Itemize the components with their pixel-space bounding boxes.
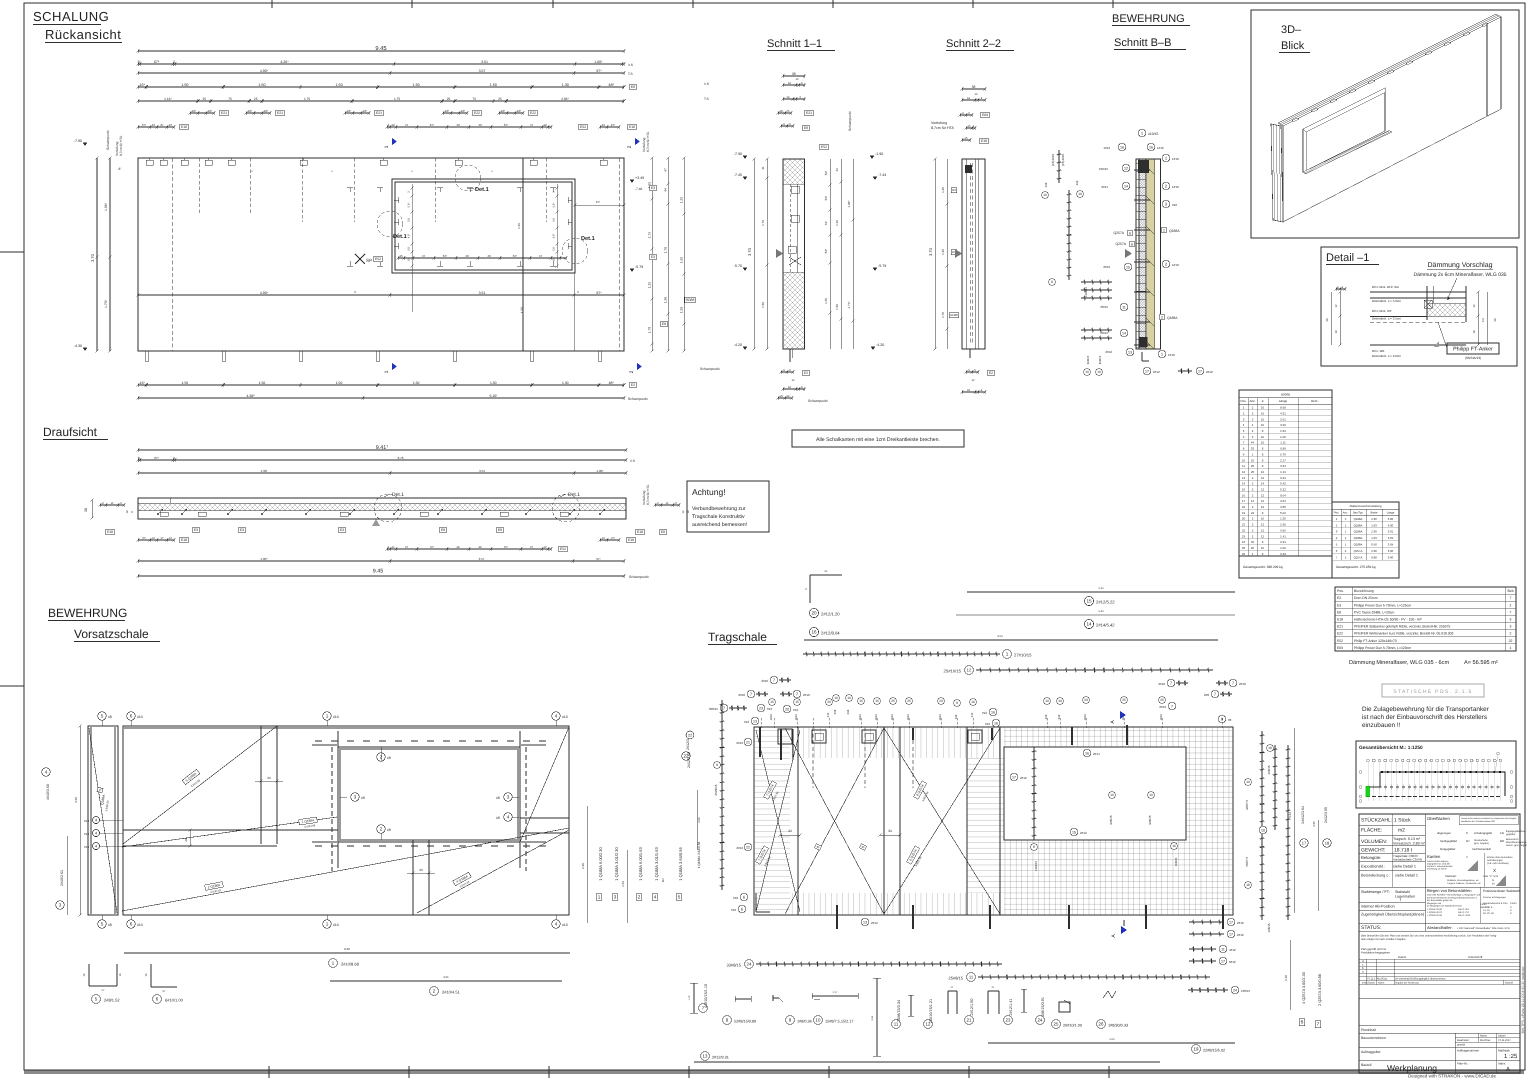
svg-text:-4.30: -4.30 xyxy=(74,344,82,348)
svg-text:67⁶: 67⁶ xyxy=(504,123,509,127)
svg-text:48⁸: 48⁸ xyxy=(609,381,615,385)
svg-text:#12: #12 xyxy=(985,722,990,726)
svg-text:8.68: 8.68 xyxy=(1280,406,1286,410)
svg-text:5: 5 xyxy=(101,714,104,719)
svg-text:9#8/15: 9#8/15 xyxy=(1086,355,1090,364)
svg-text:6.6: 6.6 xyxy=(1481,318,1485,322)
svg-text:Pos.: Pos. xyxy=(1337,589,1344,593)
svg-text:67⁶: 67⁶ xyxy=(513,254,518,258)
svg-text:1.25: 1.25 xyxy=(941,187,945,193)
svg-text:Rückansicht: Rückansicht xyxy=(45,27,121,42)
svg-text:2#14: 2#14 xyxy=(1093,752,1100,756)
svg-text:27⁵: 27⁵ xyxy=(611,537,615,540)
svg-text:Q188A: Q188A xyxy=(1354,530,1363,534)
svg-text:ist nach der Einbauvorschrift: ist nach der Einbauvorschrift des Herste… xyxy=(1362,714,1487,721)
svg-text:10: 10 xyxy=(1242,458,1246,462)
svg-text:67⁶: 67⁶ xyxy=(443,254,448,258)
svg-text:23: 23 xyxy=(1006,1018,1011,1023)
svg-text:22: 22 xyxy=(688,733,692,737)
svg-text:4: 4 xyxy=(45,770,48,775)
svg-text:97⁶: 97⁶ xyxy=(596,557,601,561)
svg-text:20: 20 xyxy=(811,611,817,616)
svg-text:8.78: 8.78 xyxy=(398,456,404,460)
svg-text:Betondeck. c.= 5.0cm: Betondeck. c.= 5.0cm xyxy=(1372,299,1401,303)
svg-text:-7.90: -7.90 xyxy=(734,152,742,156)
svg-text:#8: #8 xyxy=(387,756,391,760)
svg-text:21: 21 xyxy=(746,740,750,744)
svg-text:oberflächen der Sichtbetonklas: oberflächen der Sichtbetonklasse SB2 xyxy=(1461,820,1496,823)
svg-text:E3: E3 xyxy=(340,528,344,532)
svg-text:Schwerpunkt: Schwerpunkt xyxy=(628,397,648,401)
svg-text:1.79: 1.79 xyxy=(648,232,652,238)
svg-text:teile erfolgt erst nach erteil: teile erfolgt erst nach erteilter Freiga… xyxy=(1361,938,1406,941)
svg-text:3.60: 3.60 xyxy=(1280,423,1286,427)
svg-text:0.33: 0.33 xyxy=(1280,552,1286,556)
svg-text:10: 10 xyxy=(1261,517,1265,521)
svg-text:3#8/15: 3#8/15 xyxy=(709,707,719,711)
svg-text:33#8/15: 33#8/15 xyxy=(727,963,742,968)
svg-text:Pos.: Pos. xyxy=(1334,512,1340,515)
svg-text:25: 25 xyxy=(965,137,968,140)
svg-text:Q257A: Q257A xyxy=(1113,231,1124,235)
svg-text:38: 38 xyxy=(972,85,976,89)
svg-text:Schnitt 2–2: Schnitt 2–2 xyxy=(946,38,1001,50)
svg-text:12: 12 xyxy=(975,93,978,96)
svg-text:I: I xyxy=(1400,897,1401,902)
svg-text:13: 13 xyxy=(1128,350,1132,354)
svg-text:E52: E52 xyxy=(1337,639,1343,643)
svg-text:1.50: 1.50 xyxy=(181,83,188,87)
svg-text:2#8: 2#8 xyxy=(846,709,850,714)
svg-text:S: S xyxy=(1466,831,1468,835)
svg-text:(SN/NA/13): (SN/NA/13) xyxy=(1465,356,1481,360)
svg-text:4#10: 4#10 xyxy=(906,713,910,720)
svg-text:2 Q257A 3.60/0.88: 2 Q257A 3.60/0.88 xyxy=(1318,974,1322,1006)
svg-text:1.30: 1.30 xyxy=(562,83,569,87)
svg-text:5: 5 xyxy=(678,895,681,900)
svg-text:2: 2 xyxy=(380,827,383,832)
svg-text:4#8/15/0.91: 4#8/15/0.91 xyxy=(1041,997,1045,1017)
svg-text:Schwerpunkt: Schwerpunkt xyxy=(848,111,852,131)
svg-text:handgeglättet: handgeglättet xyxy=(1440,839,1457,843)
svg-text:Geprüft: Geprüft xyxy=(1505,982,1513,985)
svg-text:VOLUMEN:: VOLUMEN: xyxy=(1361,839,1387,845)
svg-text:10: 10 xyxy=(1261,406,1265,410)
svg-text:Draufsicht: Draufsicht xyxy=(43,425,98,439)
svg-text:PFEIFER Wellenanker kurz Rd36,: PFEIFER Wellenanker kurz Rd36, verzinkt,… xyxy=(1354,632,1454,636)
svg-text:E8: E8 xyxy=(1337,610,1341,614)
svg-text:#10: #10 xyxy=(333,923,339,927)
svg-text:18: 18 xyxy=(788,82,791,85)
svg-text:3: 3 xyxy=(354,795,357,800)
svg-text:Bearbeiter: Bearbeiter xyxy=(1457,1039,1469,1042)
svg-text:Länge: Länge xyxy=(1279,399,1288,403)
svg-text:12: 12 xyxy=(1261,505,1265,509)
svg-text:V.S: V.S xyxy=(704,82,709,86)
svg-text:E18: E18 xyxy=(107,530,113,534)
svg-text:Bez/Typ: Bez/Typ xyxy=(1353,512,1363,515)
svg-text:13#8/15: 13#8/15 xyxy=(1034,861,1038,872)
svg-text:Biegen von Betonstählen: Biegen von Betonstählen xyxy=(1427,888,1471,893)
svg-text:1.78: 1.78 xyxy=(648,327,652,333)
svg-text:4.90⁴: 4.90⁴ xyxy=(260,557,268,561)
svg-text:23: 23 xyxy=(759,706,763,710)
svg-text:1#12: 1#12 xyxy=(1157,146,1164,150)
svg-text:geglättet: geglättet xyxy=(1506,833,1516,836)
svg-text:75: 75 xyxy=(228,97,232,101)
svg-text:MoJ/CaL: MoJ/CaL xyxy=(1480,1039,1491,1042)
svg-text:Werkplanung: Werkplanung xyxy=(1387,1063,1437,1073)
svg-text:2#8: 2#8 xyxy=(833,709,837,714)
svg-text:1.50: 1.50 xyxy=(761,302,765,308)
svg-text:38: 38 xyxy=(1325,318,1329,322)
svg-text:24: 24 xyxy=(1038,1018,1043,1023)
svg-text:SP: SP xyxy=(366,258,372,263)
svg-text:Anz.: Anz. xyxy=(1249,399,1255,403)
svg-text:2#12/3.55: 2#12/3.55 xyxy=(1324,807,1328,823)
svg-text:1 Q188A 6.00/1.63: 1 Q188A 6.00/1.63 xyxy=(638,847,643,881)
svg-text:1.00⁶: 1.00⁶ xyxy=(594,60,603,64)
svg-text:6: 6 xyxy=(130,714,133,719)
svg-text:E8: E8 xyxy=(441,528,445,532)
svg-text:E2: E2 xyxy=(989,371,993,375)
svg-text:#8: #8 xyxy=(108,923,112,927)
svg-text:5.02: 5.02 xyxy=(1109,1038,1115,1041)
svg-text:4#10: 4#10 xyxy=(1083,713,1087,720)
svg-text:E8: E8 xyxy=(804,126,808,130)
svg-text:1#8: 1#8 xyxy=(954,714,958,719)
svg-text:49: 49 xyxy=(479,546,482,549)
svg-text:19: 19 xyxy=(847,696,851,700)
svg-text:26: 26 xyxy=(1099,1022,1104,1027)
svg-text:Betondeckung c :: Betondeckung c : xyxy=(1361,874,1390,878)
svg-text:Q188A: Q188A xyxy=(1354,543,1363,547)
svg-text:(15)4#10: (15)4#10 xyxy=(1061,154,1065,166)
svg-text:2.61: 2.61 xyxy=(1280,417,1286,421)
svg-text:2#12/5.22: 2#12/5.22 xyxy=(1096,600,1115,605)
svg-text:2#8: 2#8 xyxy=(1204,693,1209,697)
svg-text:8,7cm für HTA: 8,7cm für HTA xyxy=(119,135,123,156)
svg-text:Auftragsnummer: Auftragsnummer xyxy=(1457,1049,1479,1053)
svg-text:25: 25 xyxy=(1242,546,1246,550)
svg-text:44: 44 xyxy=(1251,441,1255,445)
svg-text:3.51: 3.51 xyxy=(479,469,485,473)
svg-text:34: 34 xyxy=(888,829,892,833)
svg-text:2#10: 2#10 xyxy=(803,693,810,697)
svg-text:V.S: V.S xyxy=(630,459,635,463)
svg-text:#10: #10 xyxy=(84,845,89,849)
svg-text:5.02: 5.02 xyxy=(1280,511,1286,515)
svg-text:2#12: 2#12 xyxy=(1080,831,1087,835)
svg-text:6: 6 xyxy=(130,922,133,927)
svg-text:RD88: RD88 xyxy=(950,313,958,317)
svg-text:2#12: 2#12 xyxy=(1105,350,1112,354)
svg-text:15: 15 xyxy=(1086,599,1092,604)
svg-text:Datum: Datum xyxy=(1498,1035,1506,1038)
svg-text:3.60: 3.60 xyxy=(74,797,78,803)
svg-text:2#8: 2#8 xyxy=(1075,180,1079,185)
svg-text:24: 24 xyxy=(1242,540,1246,544)
svg-text:49: 49 xyxy=(487,254,491,258)
svg-text:18: 18 xyxy=(126,510,129,513)
svg-text:15: 15 xyxy=(399,254,403,258)
svg-text:5.22: 5.22 xyxy=(1098,587,1104,590)
svg-text:7: 7 xyxy=(1317,1022,1320,1028)
svg-text:97⁶: 97⁶ xyxy=(596,69,602,73)
svg-text:Dorn DN 25mm: Dorn DN 25mm xyxy=(1354,596,1378,600)
svg-text:67⁶: 67⁶ xyxy=(430,123,435,127)
svg-text:E22: E22 xyxy=(474,111,480,115)
svg-text:23: 23 xyxy=(1084,698,1088,702)
svg-text:2#12/3.60: 2#12/3.60 xyxy=(687,752,691,768)
svg-text:2#12: 2#12 xyxy=(1103,265,1110,269)
svg-text:667: 667 xyxy=(662,877,665,882)
svg-text:V: V xyxy=(1466,856,1468,859)
svg-text:#10: #10 xyxy=(1172,203,1177,207)
svg-text:17: 17 xyxy=(1242,499,1246,503)
svg-text:Achtung!: Achtung! xyxy=(692,487,726,497)
svg-text:12: 12 xyxy=(1261,499,1265,503)
svg-text:12: 12 xyxy=(1261,476,1265,480)
svg-text:20: 20 xyxy=(827,700,831,704)
svg-text:21⁵: 21⁵ xyxy=(786,395,790,398)
svg-text:47: 47 xyxy=(530,123,534,127)
svg-text:22: 22 xyxy=(1509,639,1513,643)
svg-text:17: 17 xyxy=(1145,369,1149,373)
svg-text:STATISCHE POS. 2.1.5: STATISCHE POS. 2.1.5 xyxy=(1393,689,1472,695)
svg-text:18: 18 xyxy=(1325,840,1330,845)
svg-text:E3: E3 xyxy=(651,186,655,190)
svg-text:BC4, BD1, BF2, WA: BC4, BD1, BF2, WA xyxy=(1372,285,1399,289)
svg-text:2: 2 xyxy=(1510,632,1512,636)
svg-text:2#12: 2#12 xyxy=(1206,370,1213,374)
svg-text:2#10: 2#10 xyxy=(1158,682,1165,686)
svg-text:17: 17 xyxy=(1302,840,1307,845)
svg-text:1.63: 1.63 xyxy=(1371,523,1377,527)
svg-text:25: 25 xyxy=(1251,464,1255,468)
svg-text:die Norm-Richtwerte der Bieger: die Norm-Richtwerte der Biegerollendurch… xyxy=(1427,896,1478,899)
svg-text:4: 4 xyxy=(654,895,657,900)
svg-text:schalungsglatt: schalungsglatt xyxy=(1474,831,1492,835)
svg-text:4.90¹: 4.90¹ xyxy=(261,469,268,473)
svg-text:BC4, BD1, WF: BC4, BD1, WF xyxy=(1372,309,1392,313)
svg-text:E52: E52 xyxy=(580,125,586,129)
svg-text:STÜCKZAHL:: STÜCKZAHL: xyxy=(1361,817,1392,824)
svg-text:2.83⁴: 2.83⁴ xyxy=(561,97,569,101)
svg-text:1.63: 1.63 xyxy=(621,881,625,887)
svg-text:interner AB-Position: interner AB-Position xyxy=(1361,905,1395,909)
svg-text:20: 20 xyxy=(1251,546,1255,550)
svg-text:E3: E3 xyxy=(240,528,244,532)
svg-text:1: 1 xyxy=(384,145,390,148)
svg-text:FG: FG xyxy=(1500,831,1504,835)
svg-text:20: 20 xyxy=(785,707,789,711)
svg-text:38: 38 xyxy=(792,72,796,76)
svg-text:Breite: Breite xyxy=(1370,512,1378,515)
svg-text:16: 16 xyxy=(1149,145,1153,149)
svg-text:16: 16 xyxy=(1120,145,1124,149)
svg-text:7: 7 xyxy=(1510,610,1512,614)
svg-text:Bauteil: Bauteil xyxy=(1361,1063,1372,1067)
svg-text:#12: #12 xyxy=(826,712,830,717)
svg-text:Dämmung Vorschlag: Dämmung Vorschlag xyxy=(1428,261,1493,269)
svg-text:Philipp FT-Anker: Philipp FT-Anker xyxy=(1453,347,1493,353)
svg-text:6: 6 xyxy=(1129,231,1131,235)
svg-text:13: 13 xyxy=(1242,476,1246,480)
svg-text:3: 3 xyxy=(614,895,617,900)
svg-text:1.25: 1.25 xyxy=(648,282,652,288)
svg-text:9.45: 9.45 xyxy=(375,45,386,52)
svg-text:1.50: 1.50 xyxy=(413,83,420,87)
svg-text:2#12/9.31: 2#12/9.31 xyxy=(712,1056,729,1060)
svg-text:22#8/15/5.02: 22#8/15/5.02 xyxy=(1203,1049,1225,1053)
svg-text:12: 12 xyxy=(543,123,547,127)
svg-text:2#8/1.52: 2#8/1.52 xyxy=(104,998,120,1003)
svg-text:1.11: 1.11 xyxy=(1280,441,1286,445)
svg-text:15: 15 xyxy=(152,537,155,540)
svg-text:1.36: 1.36 xyxy=(835,220,839,226)
svg-text:1: 1 xyxy=(326,714,329,719)
svg-text:Länge: Länge xyxy=(1387,512,1395,515)
svg-text:4#10/3.60: 4#10/3.60 xyxy=(46,784,50,800)
svg-text:27⁵: 27⁵ xyxy=(611,123,616,127)
svg-text:49: 49 xyxy=(478,123,482,127)
svg-text:geprüft: geprüft xyxy=(1457,1044,1465,1047)
svg-text:2.17: 2.17 xyxy=(833,991,838,994)
svg-text:37⁵: 37⁵ xyxy=(142,537,146,540)
svg-text:18: 18 xyxy=(1472,330,1476,334)
svg-text:Philipp Power Duo h-70mm, L=12: Philipp Power Duo h-70mm, L=125cm xyxy=(1354,603,1411,607)
svg-text:E2: E2 xyxy=(1337,596,1341,600)
svg-text:53⁴: 53⁴ xyxy=(824,248,828,253)
svg-text:18, 20, 28: 18, 20, 28 xyxy=(1483,912,1494,915)
svg-text:Soweit nichts anderes vereinba: Soweit nichts anderes vereinbart ist, en… xyxy=(1461,817,1517,820)
svg-text:Vorsatzschale C35/45: Vorsatzschale C35/45 xyxy=(1393,858,1423,862)
svg-text:12: 12 xyxy=(972,379,975,382)
svg-text:25#8/15: 25#8/15 xyxy=(949,976,964,981)
svg-text:12: 12 xyxy=(111,502,114,505)
svg-text:16⁵: 16⁵ xyxy=(779,110,783,113)
svg-text:48⁸: 48⁸ xyxy=(608,83,614,87)
svg-text:12⁵: 12⁵ xyxy=(445,109,450,113)
svg-text:12: 12 xyxy=(544,546,547,549)
svg-text:2.30: 2.30 xyxy=(1371,517,1377,521)
svg-text:6.00: 6.00 xyxy=(1388,523,1394,527)
svg-text:1.79: 1.79 xyxy=(761,220,765,226)
svg-text:12: 12 xyxy=(1124,166,1128,170)
svg-text:Vertiefung: Vertiefung xyxy=(931,121,947,125)
svg-text:1 Q188A 3.01/2.30: 1 Q188A 3.01/2.30 xyxy=(614,847,619,881)
svg-text:-7.90: -7.90 xyxy=(74,139,82,143)
svg-text:12: 12 xyxy=(1472,304,1476,308)
svg-text:A= 56.595 m²: A= 56.595 m² xyxy=(1464,660,1498,666)
svg-text:Det.1: Det.1 xyxy=(581,236,595,242)
svg-text:15#8/7.5,15/2.17: 15#8/7.5,15/2.17 xyxy=(825,1020,854,1024)
svg-text:97⁶: 97⁶ xyxy=(596,291,602,295)
svg-text:GT: GT xyxy=(1466,839,1470,843)
svg-text:7#8/7.5: 7#8/7.5 xyxy=(1245,857,1249,867)
svg-text:19: 19 xyxy=(1058,699,1062,703)
svg-text:3¹: 3¹ xyxy=(138,456,141,460)
svg-text:Positionierlisten Stabstahl: Positionierlisten Stabstahl xyxy=(1483,889,1520,893)
svg-text:18: 18 xyxy=(1246,883,1250,887)
svg-text:nachbehandeln: nachbehandeln xyxy=(1472,847,1492,851)
svg-text:2#12: 2#12 xyxy=(1153,370,1160,374)
svg-text:16: 16 xyxy=(1085,751,1089,755)
svg-text:8,7cm für HTA: 8,7cm für HTA xyxy=(931,126,955,130)
svg-text:1.50: 1.50 xyxy=(182,381,189,385)
svg-text:1.50: 1.50 xyxy=(835,304,839,310)
svg-text:4#10: 4#10 xyxy=(1159,713,1163,720)
svg-text:#8/15: #8/15 xyxy=(1100,305,1108,309)
svg-text:1 Stück: 1 Stück xyxy=(1394,818,1411,824)
svg-text:19: 19 xyxy=(1097,370,1101,374)
svg-text:1.75: 1.75 xyxy=(394,97,400,101)
svg-text:Holz "V" 1cm: Holz "V" 1cm xyxy=(1483,875,1498,878)
svg-text:12: 12 xyxy=(666,502,669,505)
svg-text:14: 14 xyxy=(1251,499,1255,503)
svg-text:Vorsatzsch. 2.89 m³: Vorsatzsch. 2.89 m³ xyxy=(1393,842,1426,846)
svg-text:47: 47 xyxy=(539,254,543,258)
svg-text:19: 19 xyxy=(1043,193,1047,197)
svg-text:N immer mit Biegungen: N immer mit Biegungen xyxy=(1483,896,1507,899)
svg-text:56⁸: 56⁸ xyxy=(824,195,828,200)
svg-text:Philipp Power Duo h-70mm, L=12: Philipp Power Duo h-70mm, L=120cm xyxy=(1354,646,1411,650)
svg-text:3.01: 3.01 xyxy=(1388,530,1394,534)
svg-text:BW-TPS- oParte 28.11.2004 30-3: BW-TPS- oParte 28.11.2004 30-30 matlizie… xyxy=(1521,966,1525,1033)
svg-text:15: 15 xyxy=(169,123,173,127)
svg-text:1.70: 1.70 xyxy=(941,312,945,318)
svg-text:-5.79: -5.79 xyxy=(878,264,886,268)
svg-text:5.8: 5.8 xyxy=(407,218,410,222)
svg-text:E69: E69 xyxy=(982,113,988,117)
svg-text:4.51: 4.51 xyxy=(443,975,449,979)
svg-text:Produktion freigegeben: Produktion freigegeben xyxy=(1361,951,1390,955)
svg-text:5.8: 5.8 xyxy=(552,218,555,222)
svg-text:Det.1: Det.1 xyxy=(392,492,404,498)
svg-text:Datum: Datum xyxy=(1368,982,1375,985)
svg-text:6: 6 xyxy=(1301,1020,1304,1026)
svg-text:E8: E8 xyxy=(498,528,502,532)
svg-text:2: 2 xyxy=(173,60,175,64)
svg-text:4.5²: 4.5² xyxy=(407,234,410,239)
svg-text:5.8: 5.8 xyxy=(552,247,555,251)
svg-text:18: 18 xyxy=(788,386,791,389)
svg-text:18: 18 xyxy=(1268,746,1272,750)
svg-text:wasch. (gns. Angabe): wasch. (gns. Angabe) xyxy=(1506,844,1527,847)
svg-text:21: 21 xyxy=(1242,523,1246,527)
svg-text:Die Zulagebewehrung für die Tr: Die Zulagebewehrung für die Transportank… xyxy=(1362,706,1490,713)
svg-text:27: 27 xyxy=(160,123,164,127)
svg-text:E18: E18 xyxy=(628,538,634,542)
svg-text:25: 25 xyxy=(1122,698,1126,702)
svg-text:2#12/1.50: 2#12/1.50 xyxy=(970,999,974,1016)
svg-text:2#12: 2#12 xyxy=(1237,921,1244,925)
svg-text:1.65: 1.65 xyxy=(824,298,828,304)
svg-text:15: 15 xyxy=(1072,830,1076,834)
svg-text:#12: #12 xyxy=(767,707,772,711)
svg-text:5.22: 5.22 xyxy=(1280,487,1286,491)
svg-text:-7.44: -7.44 xyxy=(878,173,886,177)
svg-text:27: 27 xyxy=(161,537,164,540)
svg-text:18: 18 xyxy=(687,510,690,513)
svg-text:Stabstahl:: Stabstahl: xyxy=(1445,875,1457,878)
svg-text:E18: E18 xyxy=(181,538,187,542)
svg-text:1#10: 1#10 xyxy=(1172,185,1179,189)
svg-text:V.S: V.S xyxy=(628,63,633,67)
svg-text:L 200¹ Markstaff "Abstandhalte: L 200¹ Markstaff "Abstandhalter" DIN-10-… xyxy=(1457,927,1510,930)
svg-text:E18: E18 xyxy=(181,125,187,129)
